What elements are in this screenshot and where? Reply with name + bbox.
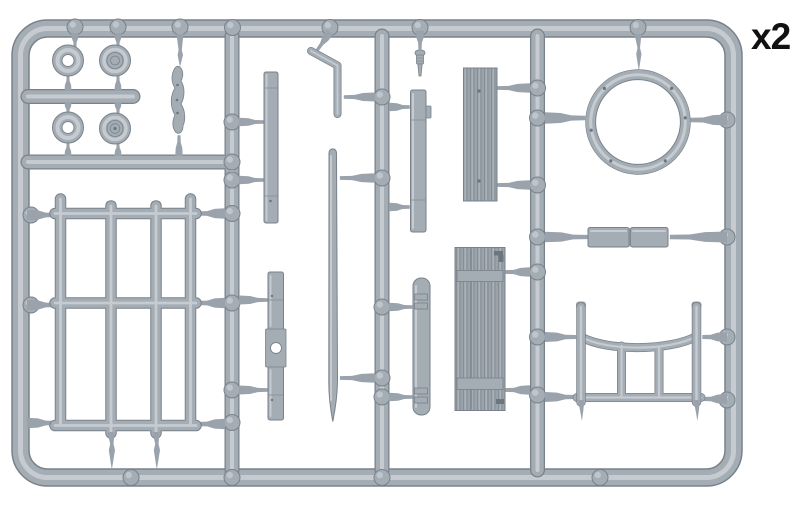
railing-panel — [55, 196, 196, 471]
curved-fence-panel — [577, 302, 702, 421]
plank-door — [455, 248, 505, 411]
wheel-ring-1 — [53, 45, 84, 76]
notched-strip — [264, 72, 278, 223]
quantity-label: x2 — [751, 16, 791, 57]
wood-plank — [464, 68, 498, 201]
turret-ring — [586, 70, 690, 174]
tapered-rod — [329, 149, 338, 422]
wheel-ring-2 — [53, 112, 84, 143]
sprue-illustration: x2 — [0, 0, 800, 505]
stowage-blocks — [588, 228, 668, 248]
pulley-wheel-2 — [100, 113, 131, 144]
drilled-strip — [266, 272, 287, 420]
sprue-photo: x2 — [0, 0, 800, 505]
hinged-strip — [413, 278, 430, 415]
small-pin — [415, 50, 425, 76]
hand-lever — [171, 66, 184, 133]
stepped-strip — [411, 90, 432, 232]
pulley-wheel-1 — [100, 45, 131, 76]
crank-handle — [311, 51, 338, 114]
